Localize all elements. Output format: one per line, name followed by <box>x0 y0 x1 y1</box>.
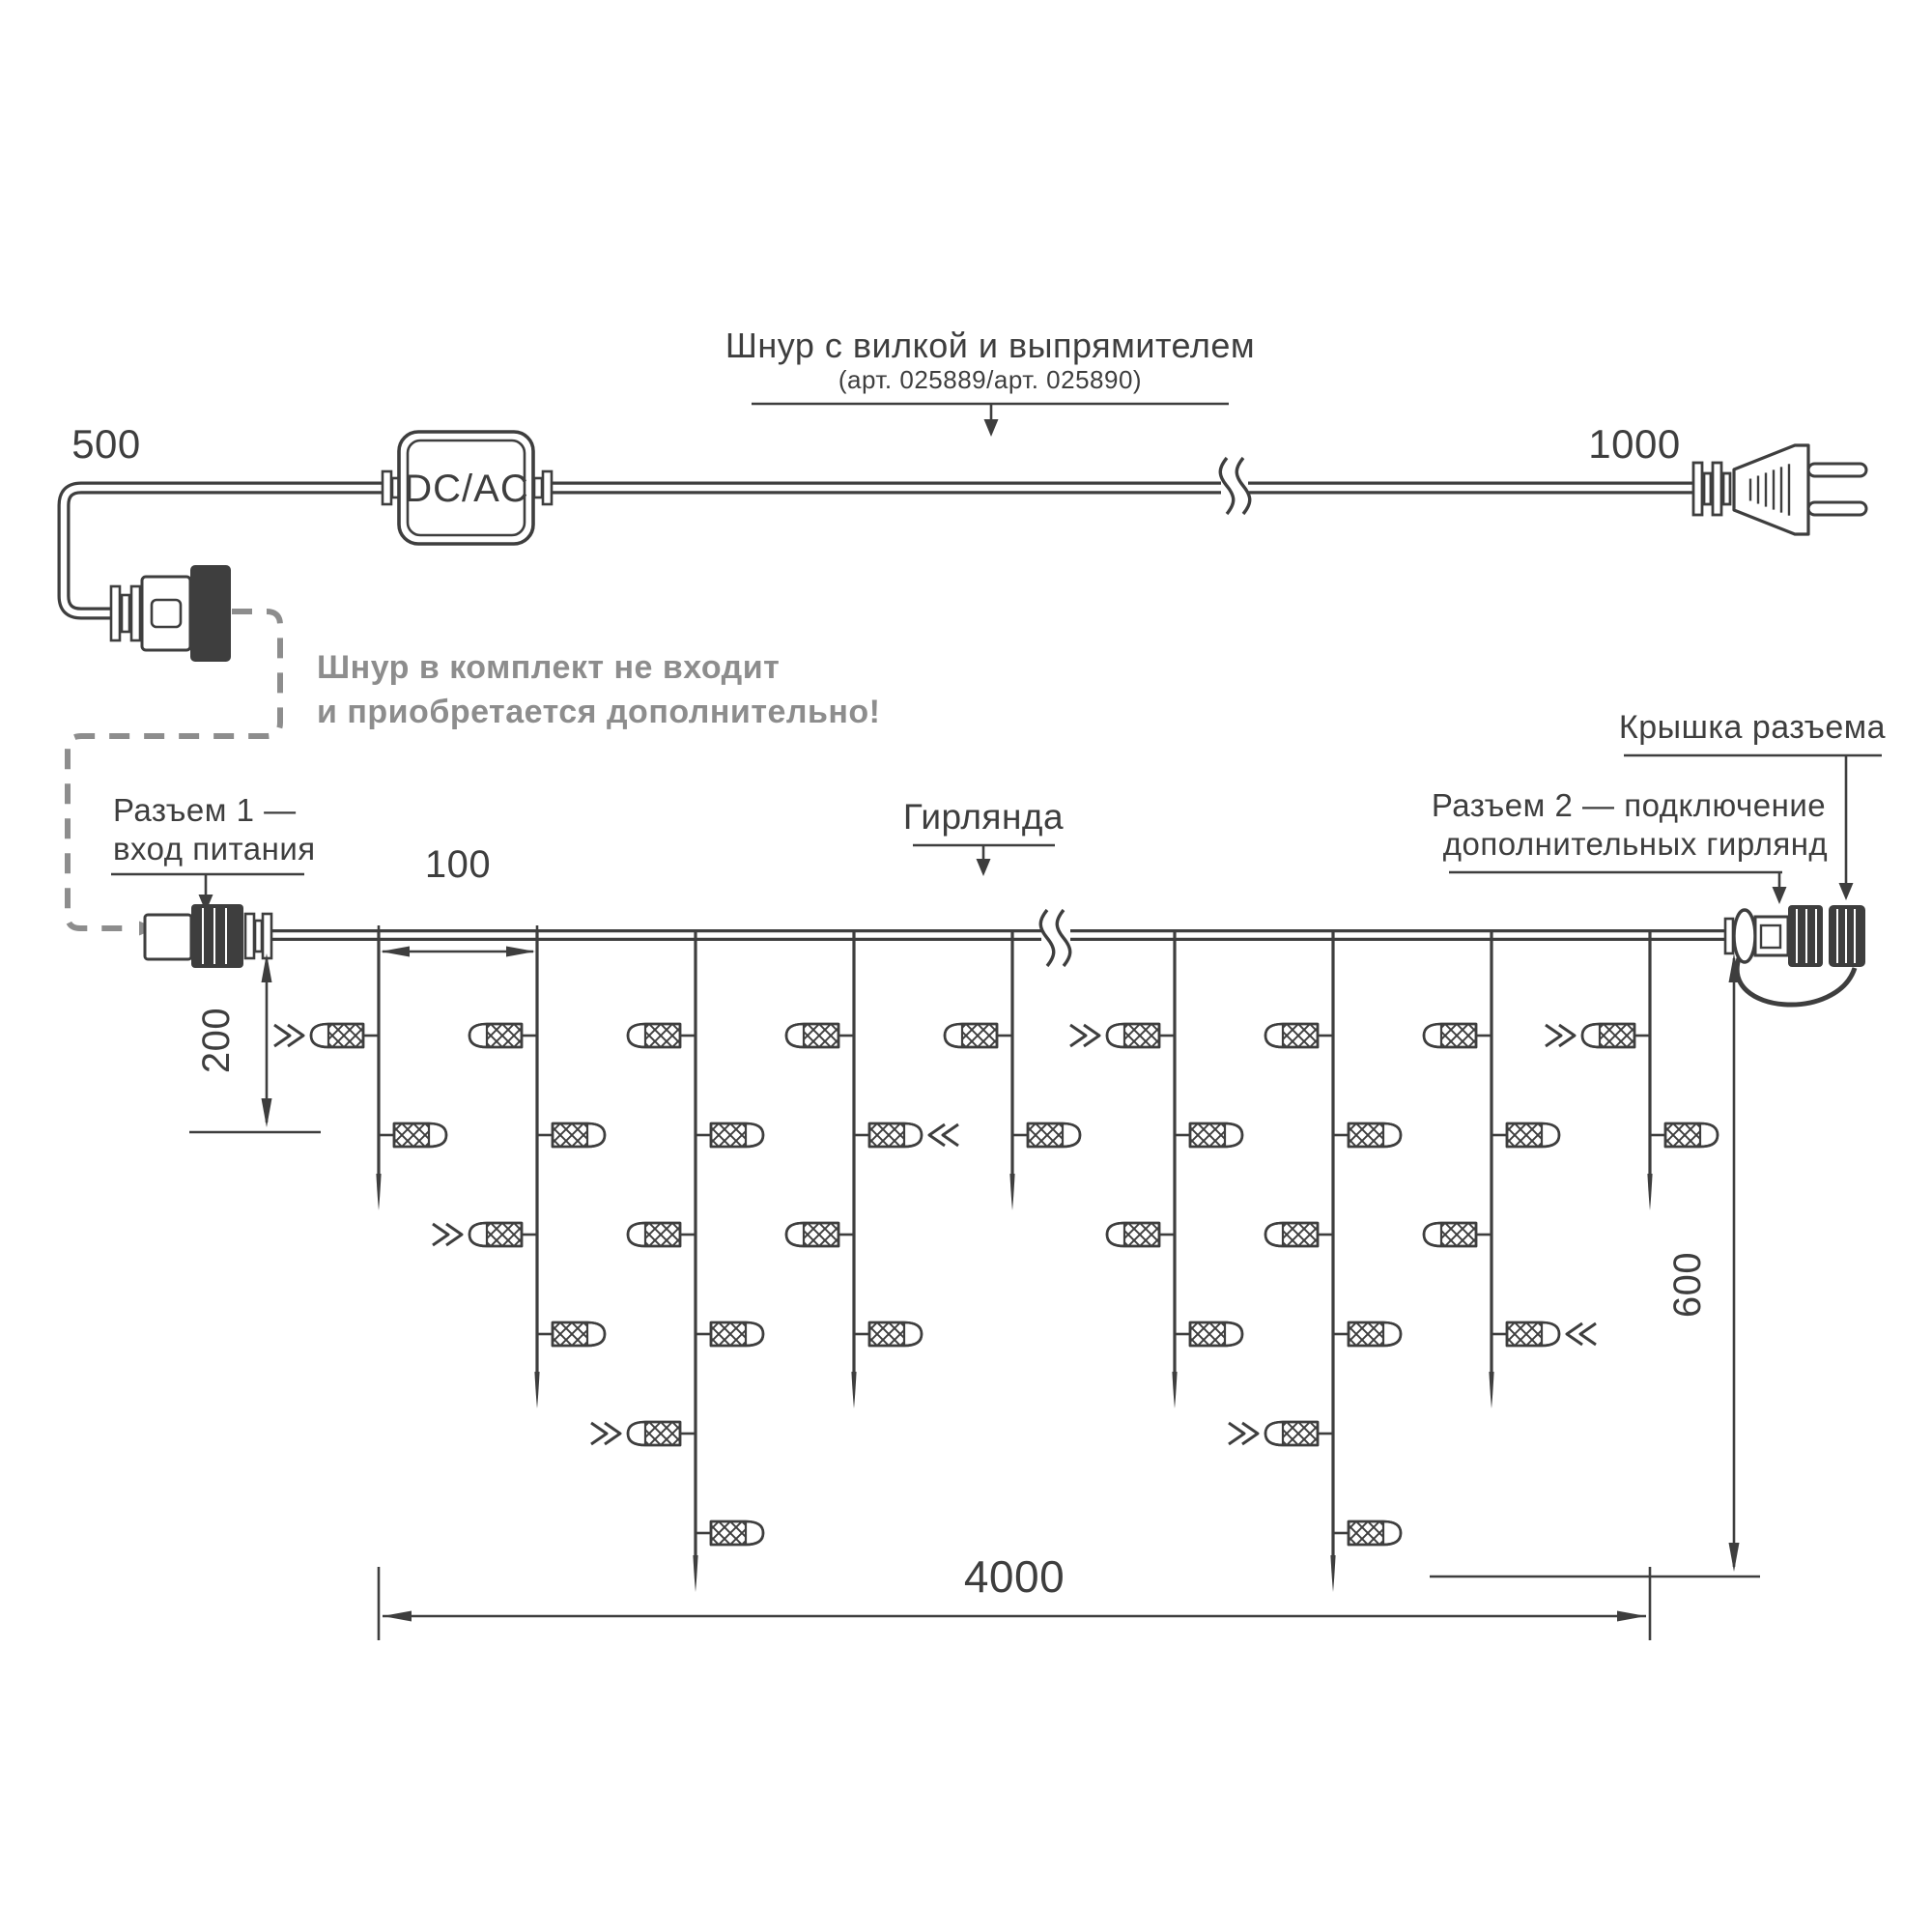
lamp-icon <box>1107 1223 1175 1246</box>
dimension-4000: 4000 <box>379 1551 1650 1640</box>
cord-break-icon <box>1220 458 1250 514</box>
light-direction-arrow-icon <box>1070 1025 1099 1046</box>
lamp-icon <box>591 1422 696 1445</box>
lamp-icon <box>1229 1422 1333 1445</box>
connector2-callout: Разъем 2 — подключениедополнительных гир… <box>1432 787 1828 904</box>
note-line-2: и приобретается дополнительно! <box>317 694 881 730</box>
cord-subtitle: (арт. 025889/арт. 025890) <box>838 365 1142 394</box>
lamp-icon <box>1424 1223 1492 1246</box>
connector2-label-line1: Разъем 2 — подключение <box>1432 787 1826 823</box>
dimension-200: 200 <box>189 953 321 1132</box>
cord-title-callout: Шнур с вилкой и выпрямителем(арт. 025889… <box>725 326 1255 437</box>
dim-200-value: 200 <box>195 1008 238 1073</box>
lamp-icon <box>1175 1123 1242 1147</box>
lamp-icon <box>537 1123 605 1147</box>
lamp-icon <box>274 1024 379 1047</box>
lamp-icon <box>786 1223 854 1246</box>
lamp-icon <box>1333 1521 1401 1545</box>
drop-1 <box>274 931 446 1210</box>
light-direction-arrow-icon <box>1229 1423 1258 1444</box>
connector1-label-line2: вход питания <box>113 831 316 867</box>
cord-title: Шнур с вилкой и выпрямителем <box>725 326 1255 365</box>
light-direction-arrow-icon <box>274 1025 303 1046</box>
dcac-label: DC/AC <box>404 468 528 510</box>
garland-label: Гирлянда <box>903 797 1064 837</box>
lamp-icon <box>1175 1322 1242 1346</box>
garland-connector-1 <box>145 904 271 968</box>
lamp-icon <box>1265 1223 1333 1246</box>
cap-label: Крышка разъема <box>1619 709 1886 746</box>
lamp-icon <box>786 1024 854 1047</box>
drop-7 <box>1229 931 1401 1592</box>
not-included-note: Шнур в комплект не входити приобретается… <box>68 611 881 936</box>
drop-6 <box>1070 931 1242 1408</box>
lamp-icon <box>537 1322 605 1346</box>
mains-plug <box>1693 445 1866 534</box>
lamp-icon <box>696 1521 763 1545</box>
light-direction-arrow-icon <box>1567 1323 1596 1345</box>
dim-100-value: 100 <box>425 843 491 886</box>
light-direction-arrow-icon <box>591 1423 620 1444</box>
drop-8 <box>1424 931 1596 1408</box>
garland-connector-2 <box>1725 905 1865 1005</box>
garland <box>145 904 1865 1592</box>
light-direction-arrow-icon <box>433 1224 462 1245</box>
drop-2 <box>433 931 605 1408</box>
garland-break-icon <box>1040 910 1070 966</box>
lamp-icon <box>1424 1024 1492 1047</box>
light-direction-arrow-icon <box>929 1124 958 1146</box>
lamp-icon <box>945 1024 1012 1047</box>
lamp-icon <box>628 1024 696 1047</box>
connector2-label-line2: дополнительных гирлянд <box>1443 826 1828 862</box>
dim-4000-value: 4000 <box>964 1551 1065 1602</box>
lamp-icon <box>1333 1322 1401 1346</box>
lamp-icon <box>1265 1024 1333 1047</box>
dim-600-value: 600 <box>1666 1252 1709 1318</box>
dimension-100: 100 <box>379 843 537 974</box>
lamp-icon <box>1012 1123 1080 1147</box>
dashed-connection-path <box>68 611 280 936</box>
lamp-icon <box>854 1322 922 1346</box>
power-cord-assembly: DC/AC5001000Шнур с вилкой и выпрямителем… <box>64 326 1866 662</box>
lamp-icon <box>1650 1123 1718 1147</box>
lamp-icon <box>379 1123 446 1147</box>
garland-callout: Гирлянда <box>903 797 1064 876</box>
lamp-icon <box>696 1322 763 1346</box>
cord-length-right: 1000 <box>1588 421 1680 467</box>
drop-5 <box>945 931 1080 1210</box>
drop-3 <box>591 931 763 1592</box>
lamp-icon <box>1492 1322 1596 1346</box>
connector1-label-line1: Разъем 1 — <box>113 792 297 828</box>
dcac-converter: DC/AC <box>383 432 552 544</box>
lamp-icon <box>1333 1123 1401 1147</box>
garland-wiring-diagram: DC/AC5001000Шнур с вилкой и выпрямителем… <box>0 0 1932 1932</box>
lamp-icon <box>854 1123 958 1147</box>
lamp-icon <box>1546 1024 1650 1047</box>
lamp-icon <box>1492 1123 1559 1147</box>
drop-9 <box>1546 931 1718 1210</box>
lamp-icon <box>469 1024 537 1047</box>
lamp-icon <box>1070 1024 1175 1047</box>
note-line-1: Шнур в комплект не входит <box>317 649 780 686</box>
diagram-page: DC/AC5001000Шнур с вилкой и выпрямителем… <box>0 0 1932 1932</box>
drop-4 <box>786 931 958 1408</box>
cord-length-left: 500 <box>71 421 141 467</box>
lamp-icon <box>628 1223 696 1246</box>
cord-connector <box>111 565 231 662</box>
light-direction-arrow-icon <box>1546 1025 1575 1046</box>
lamp-icon <box>433 1223 537 1246</box>
connector1-callout: Разъем 1 —вход питания <box>111 792 316 912</box>
lamp-icon <box>696 1123 763 1147</box>
